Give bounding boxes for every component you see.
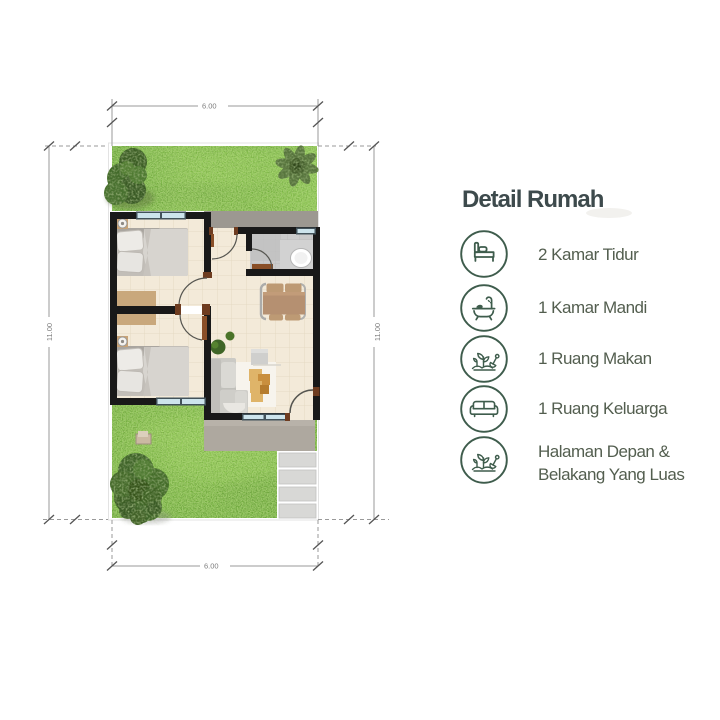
svg-text:6.00: 6.00 [204, 562, 219, 571]
svg-text:11.00: 11.00 [373, 323, 382, 341]
svg-text:6.00: 6.00 [202, 102, 217, 111]
svg-text:11.00: 11.00 [45, 323, 54, 341]
